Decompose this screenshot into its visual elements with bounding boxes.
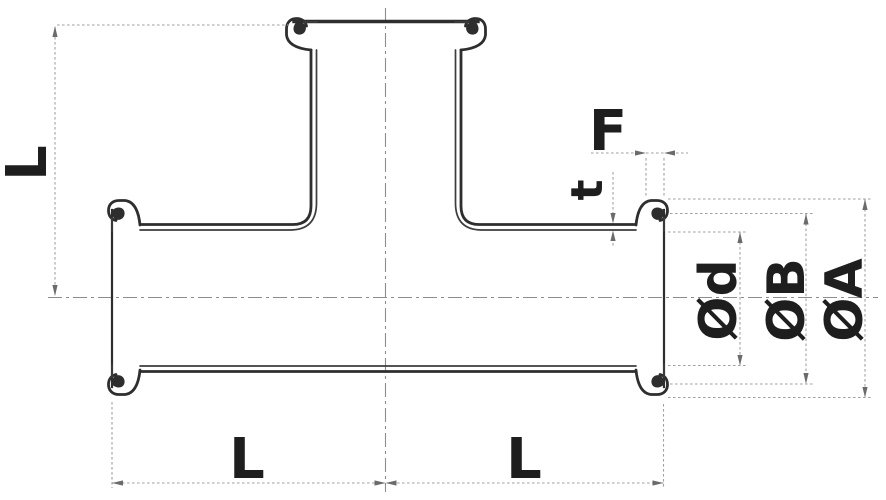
run-top-bore-left bbox=[140, 50, 317, 230]
centerlines bbox=[48, 8, 878, 492]
left-bottom-lip bbox=[109, 364, 141, 395]
dim-label-flange-width: F bbox=[589, 99, 627, 164]
branch-right-lip bbox=[455, 19, 486, 51]
drawing-canvas: L F t Ød ØB ØA L L bbox=[0, 0, 886, 500]
dim-label-run-left-length: L bbox=[229, 427, 265, 492]
right-top-lip bbox=[636, 201, 668, 232]
dim-label-bead-diameter: ØB bbox=[757, 258, 817, 342]
branch-left-lip bbox=[287, 19, 318, 51]
dim-label-wall-thickness: t bbox=[562, 179, 613, 200]
tee-fitting-drawing: L F t Ød ØB ØA L L bbox=[0, 0, 886, 500]
right-bottom-lip bbox=[636, 364, 668, 395]
dim-label-flange-diameter: ØA bbox=[815, 258, 875, 342]
left-top-lip bbox=[109, 201, 141, 232]
dimension-labels: L F t Ød ØB ØA L L bbox=[0, 99, 875, 492]
dim-label-run-right-length: L bbox=[506, 427, 542, 492]
dim-label-branch-length: L bbox=[0, 145, 60, 181]
tee-body-outline bbox=[109, 19, 668, 395]
run-top-wall-left bbox=[140, 50, 311, 225]
dim-label-inner-diameter: Ød bbox=[689, 259, 749, 340]
